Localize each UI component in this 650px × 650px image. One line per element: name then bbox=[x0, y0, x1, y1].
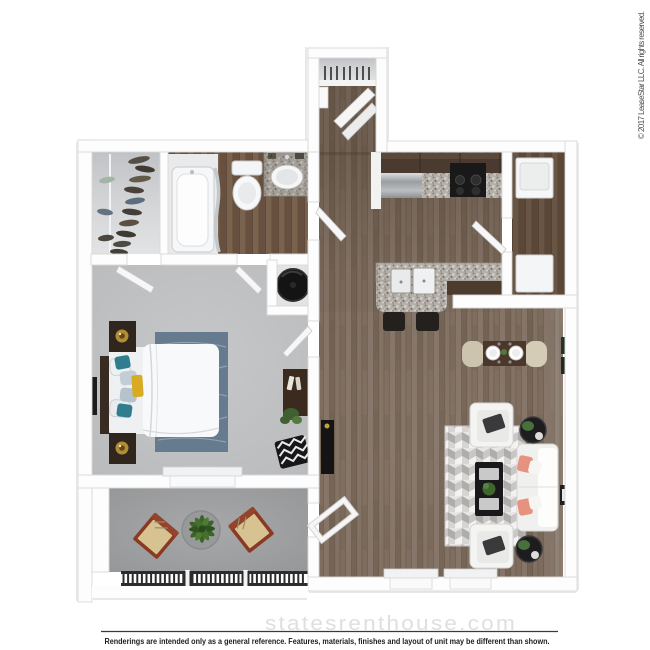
svg-text:Renderings are intended only a: Renderings are intended only as a genera… bbox=[105, 637, 550, 646]
svg-text:© 2017 LeaseStar LLC. All righ: © 2017 LeaseStar LLC. All rights reserve… bbox=[637, 11, 646, 139]
